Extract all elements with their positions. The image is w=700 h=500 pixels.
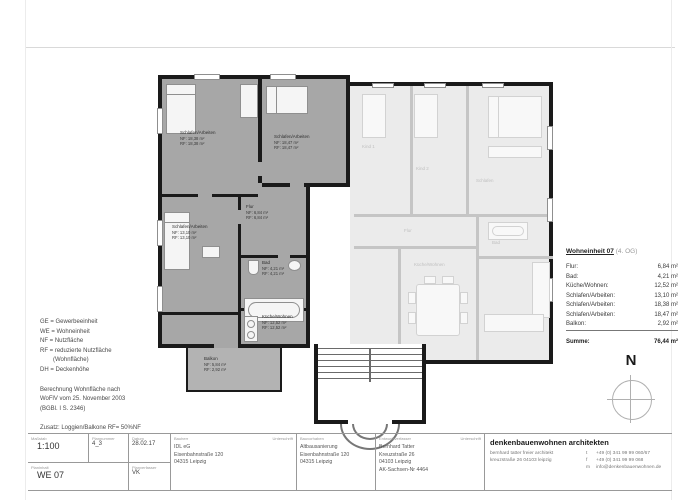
summary-row: Schlafen/Arbeiten:18,47 m² xyxy=(566,311,678,321)
plan-number-value: 4_3 xyxy=(92,441,102,447)
window xyxy=(157,286,163,312)
door-opening xyxy=(198,194,212,197)
room-label: Balkon NF: 5,84 m² RF: 2,92 m² xyxy=(204,356,226,373)
room-label: Kind 1 xyxy=(362,144,375,150)
summary-total: Summe:76,44 m² xyxy=(566,339,678,345)
north-label: N xyxy=(600,352,662,369)
furniture-bed xyxy=(488,96,542,138)
door-opening xyxy=(258,162,262,176)
furniture-wardrobe xyxy=(240,84,258,118)
room-rf: RF: 12,52 m² xyxy=(262,325,293,330)
wall xyxy=(241,255,306,258)
summary-row: Schlafen/Arbeiten:18,38 m² xyxy=(566,301,678,311)
furniture-stove-ring xyxy=(247,331,255,339)
total-value: 76,44 m² xyxy=(654,339,678,345)
firm-contact-row: m info@denkenbauenwohnen.de xyxy=(490,464,669,471)
stairwell xyxy=(314,344,426,432)
legend-note-line: WoFlV vom 25. November 2003 xyxy=(40,395,180,405)
area-summary-table: Wohneinheit 07 (4. OG) Flur:6,84 m² Bad:… xyxy=(566,248,678,345)
designer-line: AK-Sachsen-Nr 4464 xyxy=(379,467,481,475)
furniture-chair xyxy=(460,292,468,304)
room-name: Flur xyxy=(404,228,412,233)
window xyxy=(547,126,553,150)
firm-contact-left: kreuzstraße 26 04103 leipzig xyxy=(490,457,586,464)
signature-label: Unterschrift xyxy=(461,436,481,441)
room-name: Schlafen xyxy=(476,178,494,183)
furniture-bathtub xyxy=(488,222,528,240)
furniture-toilet xyxy=(248,260,259,275)
furniture-bed xyxy=(166,84,196,134)
wall xyxy=(426,360,553,364)
furniture-stove-ring xyxy=(247,320,255,328)
scale-value: 1:100 xyxy=(37,441,60,451)
room-label: Bad NF: 4,21 m² RF: 4,21 m² xyxy=(262,260,284,277)
project-line: Altbausanierung xyxy=(300,444,372,452)
firm-contact-row: kreuzstraße 26 04103 leipzig f +49 (0) 3… xyxy=(490,457,669,464)
balcony xyxy=(186,348,282,392)
room-label: Flur xyxy=(404,228,412,234)
designer-line: Kreuzstraße 26 xyxy=(379,452,481,460)
client-line: 04315 Leipzig xyxy=(174,459,293,467)
designer-cell: Entwurfsverfasser Unterschrift Bernhard … xyxy=(375,434,484,490)
author-cell: Planverfasser VK xyxy=(128,462,170,490)
row-label: Balkon: xyxy=(566,320,586,330)
row-value: 12,52 m² xyxy=(654,282,678,292)
room-rf: RF: 13,10 m² xyxy=(172,235,208,240)
signature-label: Unterschrift xyxy=(273,436,293,441)
firm-name: denkenbauenwohnen architekten xyxy=(490,438,669,447)
summary-title: Wohneinheit 07 (4. OG) xyxy=(566,248,678,255)
project-label: Bauvorhaben xyxy=(300,436,372,441)
sheet-top-rule xyxy=(25,47,675,48)
room-label: Schlafen/Arbeiten NF: 18,38 m² RF: 18,38… xyxy=(180,130,216,147)
plan-content-value: WE 07 xyxy=(37,470,64,480)
furniture-bed xyxy=(266,86,308,114)
row-value: 4,21 m² xyxy=(658,273,678,283)
wall xyxy=(158,75,350,79)
legend-line: NF = Nutzfläche xyxy=(40,337,180,347)
legend-line: DH = Deckenhöhe xyxy=(40,366,180,376)
legend-line: WE = Wohneinheit xyxy=(40,328,180,338)
firm-contact-left: bernhard tatter freier architekt xyxy=(490,450,586,457)
wall xyxy=(306,187,310,348)
furniture-bed xyxy=(414,94,438,138)
door-opening xyxy=(278,255,290,258)
furniture-wardrobe xyxy=(488,146,542,158)
north-indicator: N xyxy=(600,352,662,426)
wall xyxy=(422,344,426,424)
furniture-desk xyxy=(202,246,220,258)
row-value: 18,38 m² xyxy=(654,301,678,311)
furniture-kitchen-counter xyxy=(532,262,550,318)
row-value: 13,10 m² xyxy=(654,292,678,302)
stair-divider xyxy=(369,348,371,382)
window xyxy=(157,108,163,134)
wall xyxy=(162,312,238,315)
date-cell: Datum 28.02.17 xyxy=(128,434,170,462)
row-value: 6,84 m² xyxy=(658,263,678,273)
project-cell: Bauvorhaben Altbausanierung Eisenbahnstr… xyxy=(296,434,375,490)
summary-unit-name: Wohneinheit 07 xyxy=(566,248,614,255)
wall xyxy=(354,246,476,249)
project-line: Eisenbahnstraße 120 xyxy=(300,452,372,460)
room-label: Flur NF: 6,84 m² RF: 6,84 m² xyxy=(246,204,268,221)
furniture-chair xyxy=(408,292,416,304)
client-line: Eisenbahnstraße 120 xyxy=(174,452,293,460)
furniture-bed xyxy=(164,212,190,270)
firm-contact-key: f xyxy=(586,457,596,464)
window xyxy=(194,74,220,80)
room-rf: RF: 4,21 m² xyxy=(262,271,284,276)
window xyxy=(547,198,553,222)
window xyxy=(482,83,504,88)
plan-number-cell: Plannummer 4_3 xyxy=(88,434,128,462)
firm-contact-key: m xyxy=(586,464,596,471)
summary-row: Schlafen/Arbeiten:13,10 m² xyxy=(566,292,678,302)
wall xyxy=(354,214,550,217)
client-line: IDL eG xyxy=(174,444,293,452)
date-value: 28.02.17 xyxy=(132,441,155,447)
summary-row: Bad:4,21 m² xyxy=(566,273,678,283)
firm-contact-left xyxy=(490,464,586,471)
wall xyxy=(410,86,413,214)
room-name: Kind 2 xyxy=(416,166,429,171)
firm-contact-value: +49 (0) 341 99 99 068 xyxy=(596,457,643,464)
room-rf: RF: 18,47 m² xyxy=(274,145,310,150)
total-label: Summe: xyxy=(566,339,590,345)
room-name: Küche/Wohnen xyxy=(414,262,445,267)
plan-content-cell: Planinhalt WE 07 xyxy=(28,462,128,490)
window xyxy=(372,83,394,88)
room-name: Küche/Wohnen xyxy=(262,314,293,320)
room-rf: RF: 6,84 m² xyxy=(246,215,268,220)
sheet-left-edge xyxy=(25,0,26,500)
legend-note-line: Berechnung Wohnfläche nach xyxy=(40,386,180,396)
room-label: Schlafen/Arbeiten NF: 18,47 m² RF: 18,47… xyxy=(274,134,310,151)
legend-note-line: (BGBl. I S. 2346) xyxy=(40,405,180,415)
row-label: Flur: xyxy=(566,263,578,273)
furniture-table xyxy=(416,284,460,336)
wall xyxy=(476,217,479,360)
furniture-chair xyxy=(442,276,454,284)
wall xyxy=(262,183,350,187)
room-name: Schlafen/Arbeiten xyxy=(180,130,216,136)
door-opening xyxy=(290,183,304,187)
furniture-chair xyxy=(408,312,416,324)
author-value: VK xyxy=(132,470,140,476)
row-value: 2,92 m² xyxy=(658,320,678,330)
window xyxy=(157,220,163,246)
title-block: Maßstab 1:100 Plannummer 4_3 Datum 28.02… xyxy=(28,433,672,491)
wall xyxy=(346,75,350,187)
furniture-bed xyxy=(362,94,386,138)
designer-line: Bernhard Tatter xyxy=(379,444,481,452)
wall xyxy=(549,82,553,364)
legend: GE = Gewerbeeinheit WE = Wohneinheit NF … xyxy=(40,318,180,434)
summary-floor: (4. OG) xyxy=(616,248,638,255)
row-label: Bad: xyxy=(566,273,578,283)
wall xyxy=(466,86,469,214)
floor-plan: Kind 1 Kind 2 Schlafen Flur Küche/Wohnen… xyxy=(158,70,556,435)
room-label: Küche/Wohnen xyxy=(414,262,445,268)
firm-contact-row: bernhard tatter freier architekt t +49 (… xyxy=(490,450,669,457)
furniture-chair xyxy=(460,312,468,324)
architect-firm-cell: denkenbauenwohnen architekten bernhard t… xyxy=(484,434,672,490)
firm-contact-key: t xyxy=(586,450,596,457)
furniture-sink xyxy=(288,260,301,271)
row-label: Schlafen/Arbeiten: xyxy=(566,301,615,311)
scale-cell: Maßstab 1:100 xyxy=(28,434,88,462)
room-name: Schlafen/Arbeiten xyxy=(274,134,310,140)
room-label: Bad xyxy=(492,240,500,246)
row-label: Schlafen/Arbeiten: xyxy=(566,311,615,321)
row-value: 18,47 m² xyxy=(654,311,678,321)
furniture-chair xyxy=(424,276,436,284)
legend-line: (Wohnfläche) xyxy=(40,356,180,366)
room-name: Bad xyxy=(492,240,500,245)
wall xyxy=(479,256,553,259)
room-label: Kind 2 xyxy=(416,166,429,172)
window xyxy=(424,83,446,88)
room-name: Schlafen/Arbeiten xyxy=(172,224,208,230)
summary-row: Balkon:2,92 m² xyxy=(566,320,678,331)
legend-line: GE = Gewerbeeinheit xyxy=(40,318,180,328)
firm-contact-value: +49 (0) 341 99 99 060/67 xyxy=(596,450,650,457)
room-rf: RF: 2,92 m² xyxy=(204,367,226,372)
room-label: Schlafen/Arbeiten NF: 13,10 m² RF: 13,10… xyxy=(172,224,208,241)
row-label: Küche/Wohnen: xyxy=(566,282,609,292)
summary-row: Flur:6,84 m² xyxy=(566,263,678,273)
drawing-sheet: Kind 1 Kind 2 Schlafen Flur Küche/Wohnen… xyxy=(0,0,700,500)
firm-contact-value: info@denkenbauenwohnen.de xyxy=(596,464,661,471)
designer-line: 04103 Leipzig xyxy=(379,459,481,467)
room-name: Kind 1 xyxy=(362,144,375,149)
room-label: Küche/Wohnen NF: 12,52 m² RF: 12,52 m² xyxy=(262,314,293,331)
title-block-meta: Maßstab 1:100 Plannummer 4_3 Datum 28.02… xyxy=(28,434,170,490)
door-opening xyxy=(238,210,241,224)
legend-line: RF = reduzierte Nutzfläche xyxy=(40,347,180,357)
compass-icon xyxy=(612,380,652,420)
furniture-couch xyxy=(484,314,544,332)
summary-row: Küche/Wohnen:12,52 m² xyxy=(566,282,678,292)
client-cell: Bauherr Unterschrift IDL eG Eisenbahnstr… xyxy=(170,434,296,490)
room-rf: RF: 18,38 m² xyxy=(180,141,216,146)
row-label: Schlafen/Arbeiten: xyxy=(566,292,615,302)
room-label: Schlafen xyxy=(476,178,494,184)
window xyxy=(270,74,296,80)
project-line: 04315 Leipzig xyxy=(300,459,372,467)
